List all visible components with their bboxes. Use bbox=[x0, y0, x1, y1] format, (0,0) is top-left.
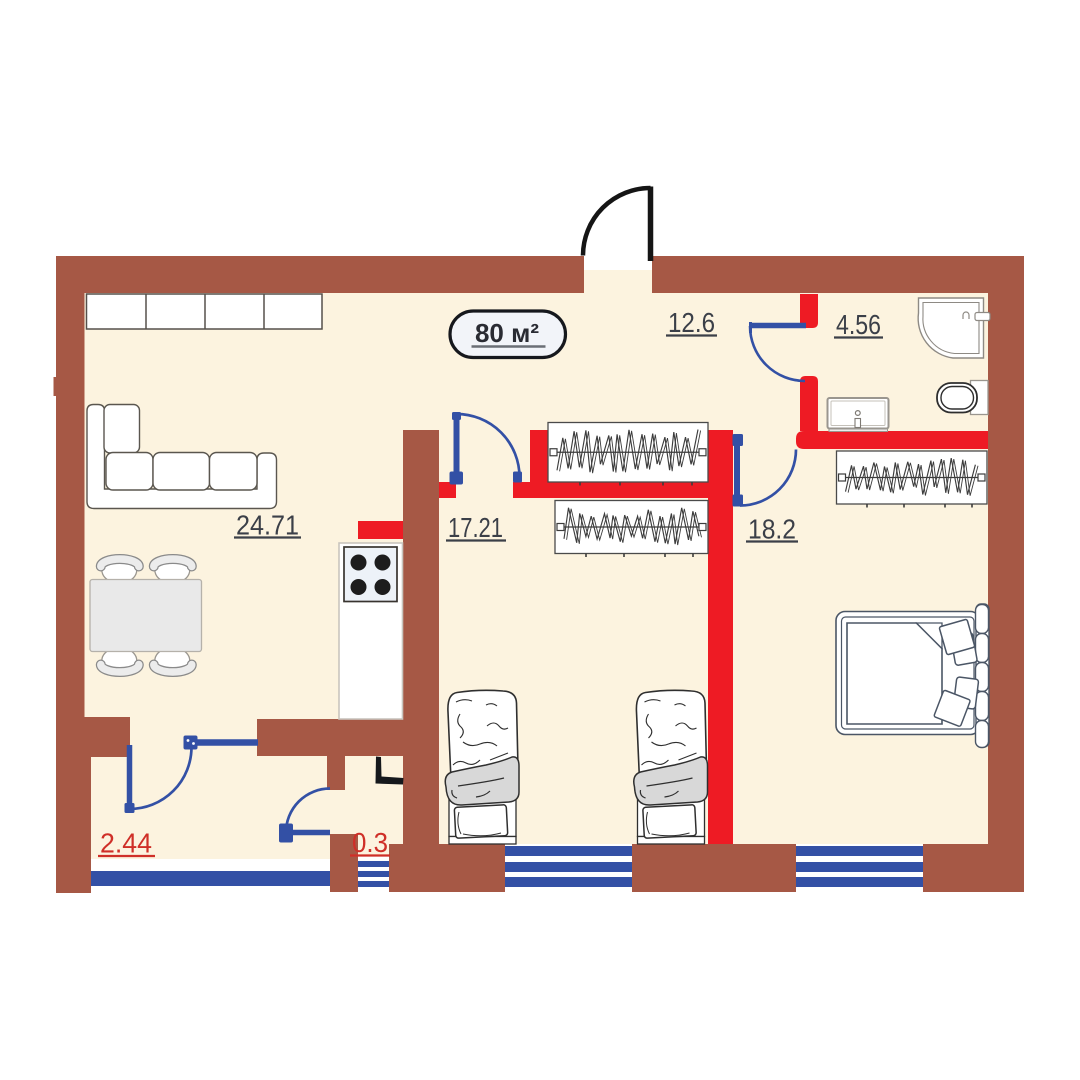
svg-text:4.56: 4.56 bbox=[836, 309, 881, 340]
svg-text:0.3: 0.3 bbox=[352, 827, 388, 858]
svg-text:2.44: 2.44 bbox=[100, 828, 152, 859]
svg-text:17.21: 17.21 bbox=[448, 512, 503, 543]
svg-text:24.71: 24.71 bbox=[236, 510, 299, 541]
svg-text:18.2: 18.2 bbox=[748, 514, 796, 545]
svg-text:12.6: 12.6 bbox=[668, 307, 715, 338]
svg-text:80 м²: 80 м² bbox=[475, 318, 539, 348]
